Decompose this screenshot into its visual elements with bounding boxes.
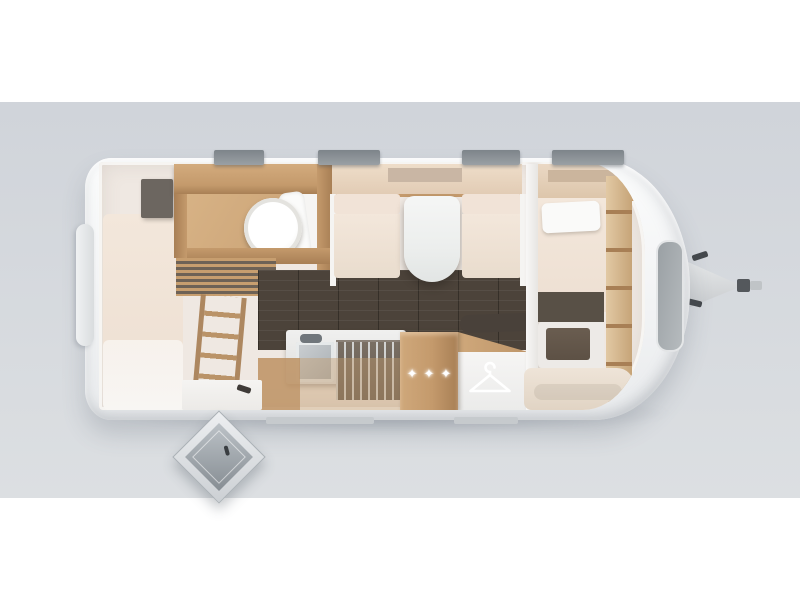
floorplan-canvas: ✦ ✦ ✦	[0, 0, 800, 600]
roof-window-4	[552, 150, 624, 165]
dinette-bench-right-back	[462, 194, 522, 214]
rear-cabinet-dark	[141, 179, 173, 218]
side-window-1	[266, 417, 374, 424]
front-bed-pillow	[541, 201, 600, 234]
roof-window-1	[214, 150, 264, 165]
dinette-locker-recess	[388, 168, 462, 182]
rear-bumper	[76, 224, 94, 346]
dinette-bench-left-seat	[334, 214, 400, 278]
roof-window-2	[318, 150, 380, 165]
caravan-interior: ✦ ✦ ✦	[99, 162, 645, 410]
entry-step-floor	[182, 380, 262, 410]
front-bench-groove	[534, 384, 622, 400]
wardrobe-stars: ✦ ✦ ✦	[402, 364, 456, 384]
entry-door-trim	[192, 430, 246, 484]
front-floor-dark	[538, 292, 604, 322]
rear-bed-sheet	[103, 340, 183, 410]
hitch-coupler-tip	[750, 281, 762, 290]
kitchen-faucet	[300, 334, 322, 343]
washroom-wall-left	[174, 194, 187, 258]
dinette-bench-right-seat	[462, 214, 522, 278]
star-icon: ✦	[440, 368, 451, 381]
front-seat-cushion	[546, 328, 590, 360]
clothes-hanger-icon	[466, 358, 514, 402]
star-icon: ✦	[407, 368, 418, 381]
front-window	[656, 240, 684, 352]
star-icon: ✦	[424, 368, 435, 381]
side-window-2	[454, 417, 518, 424]
roof-window-3	[462, 150, 520, 165]
dark-cushion	[460, 313, 533, 334]
washroom-overhead-cabinet	[174, 164, 330, 194]
hitch-coupler	[737, 279, 750, 292]
dinette-bench-left-back	[334, 194, 400, 214]
dinette-table	[404, 196, 460, 282]
kitchen-cabinet-side	[258, 358, 300, 410]
